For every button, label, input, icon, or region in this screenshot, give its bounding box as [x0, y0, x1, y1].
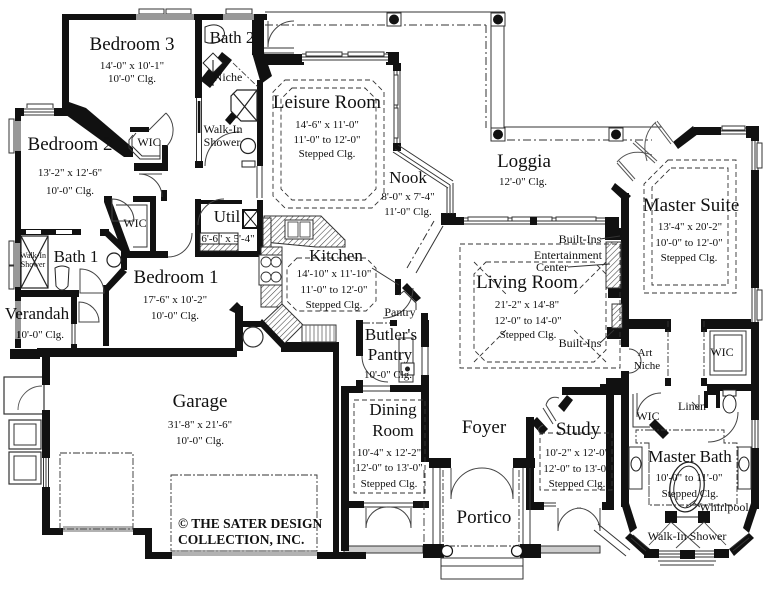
svg-text:Shower: Shower [204, 135, 241, 149]
svg-text:COLLECTION, INC.: COLLECTION, INC. [178, 532, 304, 547]
svg-text:Niche: Niche [214, 70, 243, 84]
svg-text:Room: Room [372, 421, 414, 440]
svg-text:Butler's: Butler's [365, 325, 417, 344]
svg-text:Walk-In: Walk-In [20, 251, 46, 260]
svg-text:Linen: Linen [678, 399, 706, 413]
svg-text:Util: Util [214, 207, 241, 226]
svg-text:14'-6" x 11'-0": 14'-6" x 11'-0" [295, 119, 359, 131]
svg-text:21'-2" x 14'-8": 21'-2" x 14'-8" [495, 299, 559, 311]
svg-text:Portico: Portico [457, 507, 512, 528]
svg-text:10'-0" Clg.: 10'-0" Clg. [151, 310, 199, 322]
svg-text:Bedroom 3: Bedroom 3 [90, 34, 175, 55]
svg-text:17'-6" x 10'-2": 17'-6" x 10'-2" [143, 294, 207, 306]
svg-text:12'-0" Clg.: 12'-0" Clg. [499, 176, 547, 188]
svg-text:Built-Ins: Built-Ins [559, 232, 602, 246]
svg-text:10'-0" to 12'-0": 10'-0" to 12'-0" [655, 237, 722, 249]
svg-text:12'-0" to 13'-0": 12'-0" to 13'-0" [543, 463, 610, 475]
svg-text:WIC: WIC [710, 345, 733, 359]
svg-text:Walk-In Shower: Walk-In Shower [648, 529, 727, 543]
svg-text:10'-0" Clg.: 10'-0" Clg. [176, 435, 224, 447]
svg-text:Shower: Shower [21, 260, 46, 269]
svg-text:11'-0" to 12'-0": 11'-0" to 12'-0" [294, 134, 361, 146]
svg-text:© THE SATER DESIGN: © THE SATER DESIGN [178, 516, 323, 531]
svg-text:Bedroom 1: Bedroom 1 [134, 267, 219, 288]
svg-text:Bath 2: Bath 2 [210, 28, 255, 47]
svg-text:Stepped Clg.: Stepped Clg. [661, 252, 718, 264]
svg-text:Kitchen: Kitchen [309, 246, 363, 265]
svg-text:14'-0" x 10'-1": 14'-0" x 10'-1" [100, 60, 164, 72]
svg-text:Stepped Clg.: Stepped Clg. [306, 299, 363, 311]
svg-text:Niche: Niche [634, 360, 660, 372]
svg-text:13'-4" x 20'-2": 13'-4" x 20'-2" [658, 221, 722, 233]
svg-text:WIC: WIC [636, 409, 659, 423]
svg-text:Bedroom 2: Bedroom 2 [28, 134, 113, 155]
svg-text:Dining: Dining [369, 400, 417, 419]
svg-text:Whirlpool: Whirlpool [699, 500, 749, 514]
svg-text:10'-0" to 11'-0": 10'-0" to 11'-0" [656, 472, 723, 484]
svg-text:Stepped Clg.: Stepped Clg. [361, 478, 418, 490]
svg-text:Study: Study [556, 419, 601, 440]
svg-text:8'-0" x 7'-4": 8'-0" x 7'-4" [381, 191, 434, 203]
svg-text:Bath 1: Bath 1 [54, 247, 99, 266]
svg-text:10'-4" x 12'-2": 10'-4" x 12'-2" [357, 447, 421, 459]
svg-text:12'-0" to 14'-0": 12'-0" to 14'-0" [494, 315, 561, 327]
svg-text:Loggia: Loggia [497, 151, 551, 172]
svg-text:Built-Ins: Built-Ins [559, 336, 602, 350]
svg-text:WIC: WIC [123, 216, 146, 230]
svg-text:Walk-In: Walk-In [203, 122, 242, 136]
svg-text:Living Room: Living Room [476, 272, 578, 293]
svg-text:Stepped Clg.: Stepped Clg. [549, 478, 606, 490]
svg-text:Art: Art [638, 347, 653, 359]
svg-text:10'-0" Clg.: 10'-0" Clg. [46, 185, 94, 197]
svg-text:Stepped Clg.: Stepped Clg. [299, 148, 356, 160]
svg-text:Pantry: Pantry [384, 305, 415, 319]
svg-text:31'-8" x 21'-6": 31'-8" x 21'-6" [168, 419, 232, 431]
svg-text:6'-6" x 5'-4": 6'-6" x 5'-4" [201, 233, 254, 245]
svg-text:Master Suite: Master Suite [643, 195, 740, 216]
svg-text:10'-0" Clg.: 10'-0" Clg. [108, 73, 156, 85]
svg-text:Garage: Garage [173, 391, 228, 412]
svg-text:WIC: WIC [137, 135, 160, 149]
svg-text:10'-0" Clg.: 10'-0" Clg. [16, 329, 64, 341]
svg-text:Verandah: Verandah [5, 304, 70, 323]
svg-text:11'-0" to 12'-0": 11'-0" to 12'-0" [301, 284, 368, 296]
svg-text:12'-0" to 13'-0": 12'-0" to 13'-0" [355, 462, 422, 474]
svg-text:Pantry: Pantry [368, 345, 413, 364]
svg-text:Nook: Nook [389, 168, 427, 187]
svg-text:14'-10" x 11'-10": 14'-10" x 11'-10" [297, 268, 372, 280]
svg-text:10'-0" Clg.: 10'-0" Clg. [364, 369, 412, 381]
svg-text:Stepped Clg.: Stepped Clg. [662, 488, 719, 500]
svg-text:13'-2" x 12'-6": 13'-2" x 12'-6" [38, 167, 102, 179]
svg-text:Stepped Clg.: Stepped Clg. [500, 329, 557, 341]
svg-text:10'-2" x 12'-0": 10'-2" x 12'-0" [545, 447, 609, 459]
svg-text:Leisure Room: Leisure Room [273, 92, 381, 113]
svg-text:Foyer: Foyer [462, 417, 507, 438]
svg-text:Center: Center [536, 260, 568, 274]
svg-text:Master Bath: Master Bath [648, 447, 732, 466]
svg-text:11'-0" Clg.: 11'-0" Clg. [384, 206, 432, 218]
